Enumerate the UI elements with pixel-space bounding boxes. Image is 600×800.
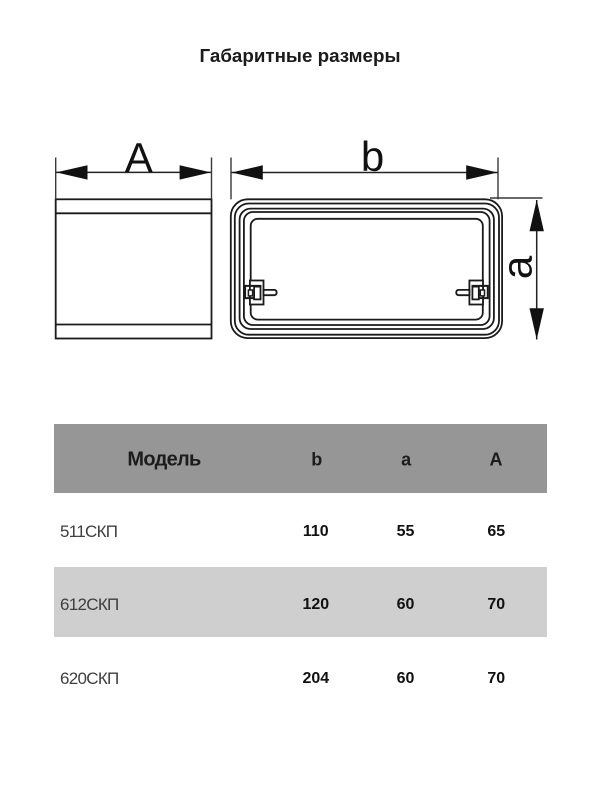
svg-text:a: a: [494, 255, 541, 279]
svg-text:A: A: [125, 134, 153, 181]
svg-text:b: b: [361, 133, 384, 180]
